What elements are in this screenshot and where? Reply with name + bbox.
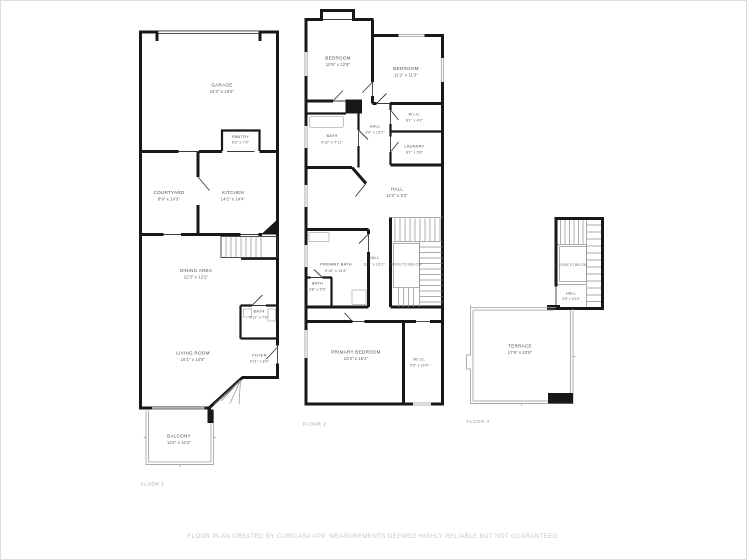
room-name: LAUNDRY — [404, 144, 424, 149]
room-dims: 22'3" x 19'5" — [210, 89, 235, 94]
floor-label: FLOOR 1 — [141, 482, 164, 487]
room-name: PRIMARY BATH — [320, 262, 352, 267]
room-dims: 9'10" x 13'4" — [325, 269, 347, 273]
room-name: HALL — [566, 292, 576, 296]
room-dims: 6'0" x 7'0" — [232, 141, 250, 145]
room-dims: 3'8" x 5'5" — [309, 288, 327, 292]
floor-label: FLOOR 2 — [303, 422, 326, 427]
room-name: W.I.C. — [408, 112, 420, 117]
room-name: DINING AREA — [180, 268, 213, 273]
room-dims: 15'3" x 16'4" — [344, 356, 369, 361]
open-to-below-label: OPEN TO BELOW — [390, 263, 422, 267]
footer-disclaimer: FLOOR PLAN CREATED BY CUBICASA APP. MEAS… — [187, 533, 559, 540]
floor-plan-canvas: GARAGE 22'3" x 19'5" PANTRY 6'0" x 7'0" … — [0, 0, 747, 560]
room-dims: 11'1" x 13'1" — [363, 263, 385, 267]
floor-label: FLOOR 3 — [467, 419, 490, 424]
room-dims: 8'9" x 14'3" — [158, 197, 180, 202]
planter-block — [548, 393, 573, 404]
room-dims: 5'11" x 8'9" — [250, 360, 270, 364]
room-name: HALL — [391, 187, 404, 192]
room-name: TERRACE — [508, 344, 532, 349]
room-name: LIVING ROOM — [176, 351, 209, 356]
room-dims: 3'8" x 3'10" — [562, 297, 581, 301]
room-dims: 8'1" x 4'2" — [406, 119, 424, 123]
room-name: W.I.C. — [413, 357, 425, 362]
room-name: HALL — [370, 124, 381, 129]
room-name: PRIMARY BEDROOM — [331, 350, 381, 355]
room-name: GARAGE — [211, 83, 232, 88]
image-border — [1, 1, 747, 560]
room-dims: 17'9" x 20'8" — [508, 350, 533, 355]
room-name: COURTYARD — [154, 190, 185, 195]
room-name: BATH — [326, 133, 337, 138]
room-dims: 5'9" x 16'4" — [410, 364, 430, 368]
room-name: PANTRY — [232, 134, 249, 139]
room-name: BEDROOM — [393, 66, 419, 71]
floor-plan-page: GARAGE 22'3" x 19'5" PANTRY 6'0" x 7'0" … — [0, 0, 747, 560]
room-dims: 14'2" x 14'4" — [221, 197, 246, 202]
room-name: BATH — [312, 281, 323, 286]
room-name: KITCHEN — [222, 190, 244, 195]
room-name: BATH — [253, 309, 264, 314]
wall-block — [346, 100, 363, 114]
room-name: BEDROOM — [325, 56, 351, 61]
room-dims: 16'1" x 14'8" — [181, 357, 206, 362]
room-dims: 14'2" x 9'3" — [386, 193, 408, 198]
pillar — [208, 410, 214, 424]
room-name: FOYER — [252, 353, 267, 358]
open-to-below-label: OPEN TO BELOW — [559, 263, 587, 267]
room-name: HALL — [369, 255, 380, 260]
room-dims: 3'6" x 13'2" — [365, 131, 385, 135]
room-dims: 5'11" x 7'6" — [249, 316, 269, 320]
room-dims: 8'1" x 5'6" — [406, 151, 424, 155]
room-dims: 10'9" x 12'9" — [326, 62, 351, 67]
room-dims: 9'10" x 7'11" — [321, 141, 343, 145]
room-dims: 22'3" x 12'2" — [184, 275, 209, 280]
room-dims: 11'6" x 10'4" — [167, 440, 191, 445]
room-dims: 11'2" x 11'3" — [394, 73, 418, 78]
room-name: BALCONY — [167, 434, 191, 439]
